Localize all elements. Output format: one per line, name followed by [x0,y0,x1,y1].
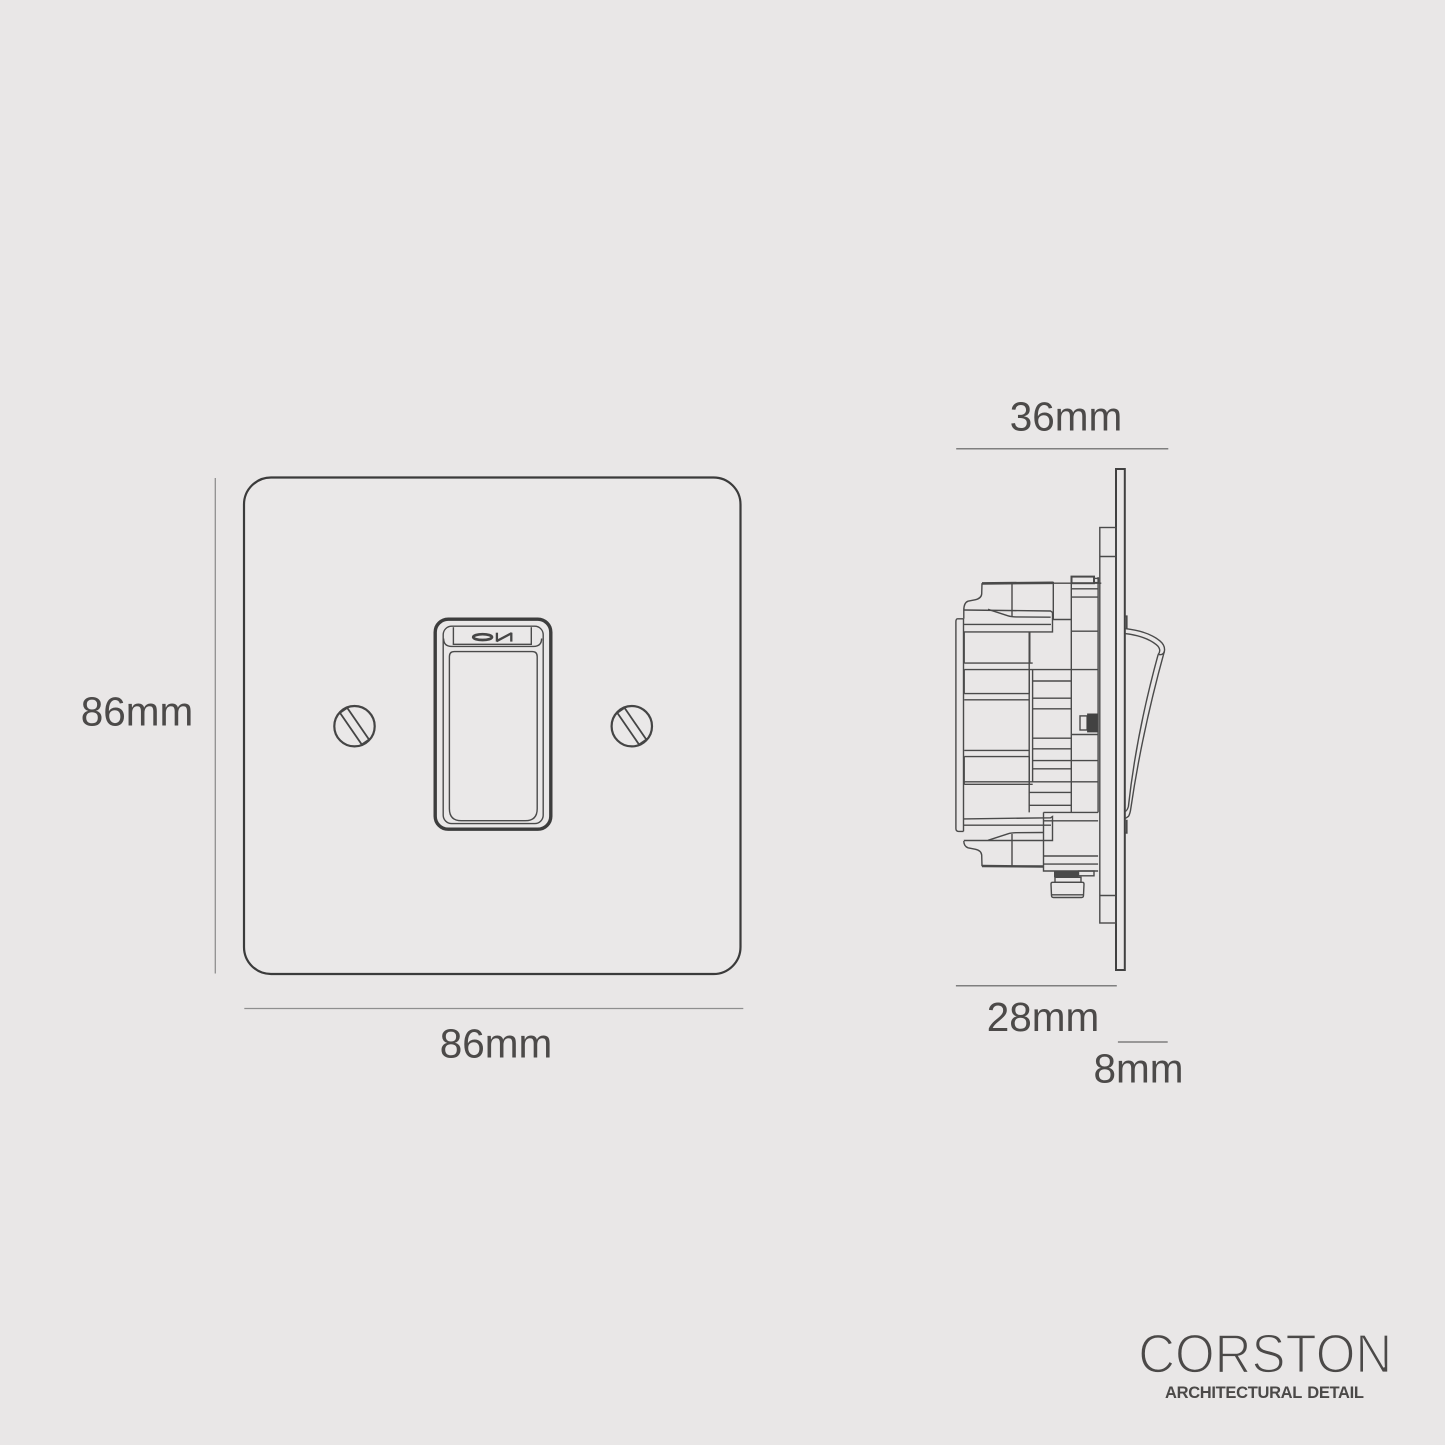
svg-text:86mm: 86mm [440,1021,553,1067]
svg-text:36mm: 36mm [1010,394,1123,440]
svg-text:ARCHITECTURAL DETAIL: ARCHITECTURAL DETAIL [1165,1384,1364,1402]
svg-text:28mm: 28mm [987,994,1100,1040]
svg-text:8mm: 8mm [1094,1046,1184,1092]
svg-text:CORSTON: CORSTON [1138,1323,1392,1385]
svg-text:86mm: 86mm [81,689,194,735]
